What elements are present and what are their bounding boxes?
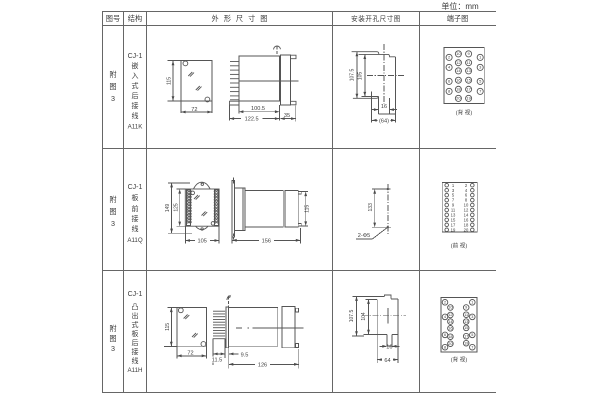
svg-text:图: 图 <box>109 334 116 343</box>
svg-text:100.5: 100.5 <box>251 106 265 112</box>
svg-text:安装开孔尺寸图: 安装开孔尺寸图 <box>351 14 401 23</box>
svg-text:17: 17 <box>464 334 468 338</box>
svg-text:19: 19 <box>451 227 456 232</box>
svg-text:12: 12 <box>448 313 452 317</box>
svg-text:156: 156 <box>262 239 271 245</box>
svg-text:16: 16 <box>448 327 452 331</box>
svg-text:16: 16 <box>456 78 461 83</box>
svg-text:115: 115 <box>167 77 173 85</box>
svg-text:8: 8 <box>444 345 446 349</box>
svg-text:CJ-1: CJ-1 <box>128 53 143 60</box>
svg-text:16: 16 <box>386 344 392 350</box>
svg-text:20: 20 <box>456 96 461 101</box>
svg-text:接: 接 <box>132 101 139 110</box>
svg-text:3: 3 <box>111 94 115 103</box>
svg-text:前: 前 <box>132 204 139 213</box>
svg-text:72: 72 <box>187 351 193 357</box>
svg-text:115: 115 <box>165 323 171 331</box>
svg-text:线: 线 <box>132 224 139 233</box>
svg-text:附: 附 <box>109 195 116 204</box>
svg-text:133: 133 <box>368 203 374 212</box>
svg-text:结构: 结构 <box>128 14 142 23</box>
svg-text:板: 板 <box>132 193 139 202</box>
svg-text:图号: 图号 <box>106 14 120 23</box>
svg-text:式: 式 <box>132 320 139 329</box>
svg-text:线: 线 <box>132 111 139 120</box>
svg-text:凸: 凸 <box>132 303 139 311</box>
svg-text:12: 12 <box>456 60 461 65</box>
svg-text:104: 104 <box>361 312 367 321</box>
svg-text:10: 10 <box>456 51 461 56</box>
svg-text:(前 视): (前 视) <box>451 242 468 250</box>
svg-text:出: 出 <box>132 311 139 320</box>
svg-text:6: 6 <box>444 333 446 337</box>
svg-text:后: 后 <box>132 338 139 347</box>
svg-text:122.5: 122.5 <box>245 117 259 123</box>
svg-text:19: 19 <box>464 341 468 345</box>
svg-text:115: 115 <box>305 205 311 213</box>
svg-text:3: 3 <box>471 315 473 319</box>
svg-text:13: 13 <box>464 320 468 324</box>
svg-text:16: 16 <box>381 104 387 110</box>
svg-text:4: 4 <box>444 315 446 319</box>
svg-text:线: 线 <box>132 356 139 365</box>
svg-text:14: 14 <box>456 68 461 73</box>
svg-text:图: 图 <box>109 82 116 91</box>
svg-text:A11K: A11K <box>128 124 144 131</box>
svg-text:64: 64 <box>384 358 390 364</box>
svg-text:外形尺寸图: 外形尺寸图 <box>212 14 273 23</box>
svg-text:嵌: 嵌 <box>132 62 139 70</box>
svg-text:附: 附 <box>109 70 116 79</box>
svg-text:(背 视): (背 视) <box>451 356 468 364</box>
svg-text:单位：mm: 单位：mm <box>441 1 479 11</box>
svg-text:5: 5 <box>471 333 473 337</box>
svg-text:18: 18 <box>456 87 461 92</box>
svg-text:2-Φ5: 2-Φ5 <box>358 233 371 239</box>
svg-text:附: 附 <box>109 324 116 333</box>
svg-text:149: 149 <box>165 204 171 213</box>
svg-text:107.5: 107.5 <box>349 310 355 323</box>
svg-text:后: 后 <box>132 91 139 100</box>
svg-text:CJ-1: CJ-1 <box>128 184 143 191</box>
svg-text:9: 9 <box>465 306 467 310</box>
svg-text:35: 35 <box>284 113 290 119</box>
svg-text:端子图: 端子图 <box>447 14 469 23</box>
svg-text:72: 72 <box>191 107 197 113</box>
svg-text:(背 视): (背 视) <box>456 109 473 117</box>
svg-text:7: 7 <box>471 345 473 349</box>
svg-text:3: 3 <box>111 344 115 353</box>
svg-text:1: 1 <box>471 301 473 305</box>
svg-text:125: 125 <box>173 203 179 212</box>
svg-text:20: 20 <box>464 227 469 232</box>
svg-text:A11Q: A11Q <box>127 237 143 244</box>
svg-text:14: 14 <box>448 320 452 324</box>
svg-text:11: 11 <box>464 313 468 317</box>
svg-text:105: 105 <box>357 72 363 81</box>
svg-text:17: 17 <box>466 87 471 92</box>
svg-text:107.5: 107.5 <box>349 69 355 82</box>
svg-text:A11H: A11H <box>127 367 142 374</box>
svg-text:126: 126 <box>258 363 267 369</box>
svg-text:板: 板 <box>132 329 139 338</box>
svg-text:18: 18 <box>448 335 452 339</box>
svg-text:20: 20 <box>448 342 452 346</box>
svg-text:(64): (64) <box>379 119 389 125</box>
svg-text:9.5: 9.5 <box>241 352 249 358</box>
svg-text:15: 15 <box>464 326 468 330</box>
svg-text:接: 接 <box>132 347 139 356</box>
svg-text:10: 10 <box>448 306 452 310</box>
svg-text:19: 19 <box>466 96 471 101</box>
svg-text:接: 接 <box>132 214 139 223</box>
svg-text:13: 13 <box>466 68 471 73</box>
svg-text:2: 2 <box>444 301 446 305</box>
svg-text:3: 3 <box>111 219 115 228</box>
svg-text:CJ-1: CJ-1 <box>128 291 143 298</box>
svg-text:15: 15 <box>466 78 471 83</box>
svg-text:11.5: 11.5 <box>212 358 222 364</box>
svg-text:105: 105 <box>198 239 207 245</box>
svg-text:式: 式 <box>132 81 139 90</box>
svg-text:图: 图 <box>109 207 116 216</box>
svg-text:入: 入 <box>132 72 139 80</box>
